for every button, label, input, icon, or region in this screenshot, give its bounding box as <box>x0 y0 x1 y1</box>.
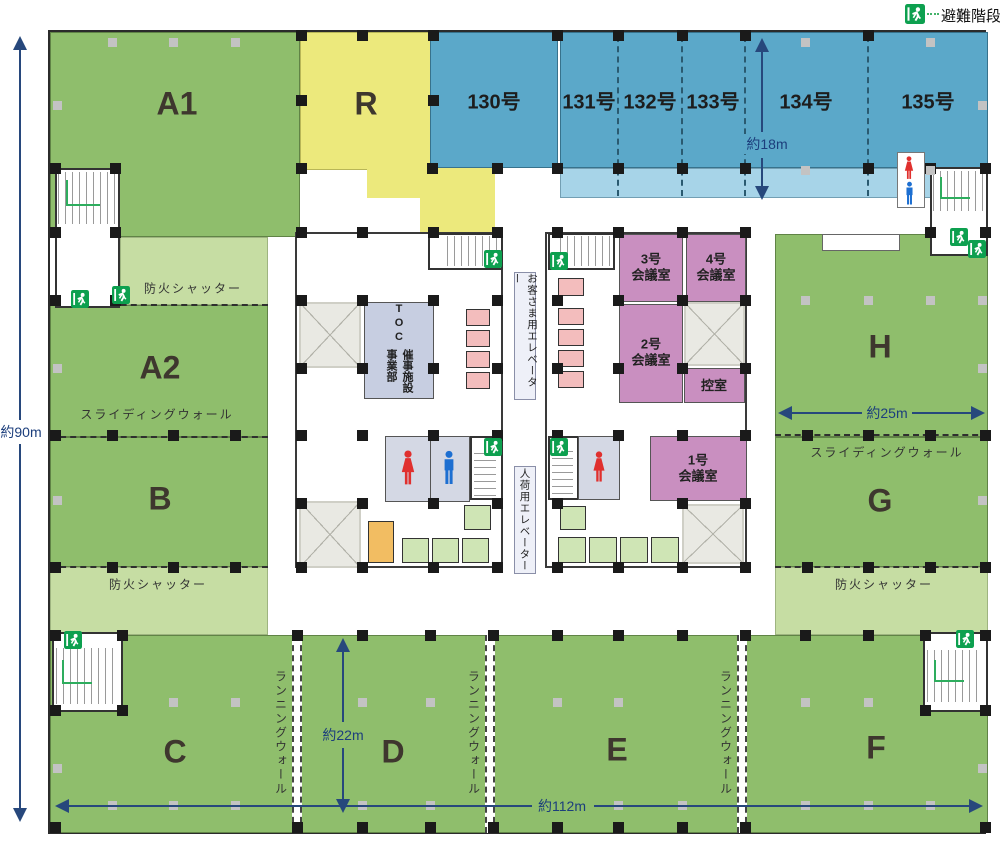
pillar <box>613 630 624 641</box>
meeting-room-4-label: 4号 会議室 <box>696 251 735 282</box>
arrow-left-icon <box>55 799 69 813</box>
pillar <box>801 166 810 175</box>
arrow-up-icon <box>13 36 27 50</box>
pillar <box>740 562 751 573</box>
pillar <box>980 227 991 238</box>
pillar <box>978 764 987 773</box>
arrow-right-icon <box>969 799 983 813</box>
pillar <box>925 227 936 238</box>
dimension-line <box>342 650 344 722</box>
pillar <box>357 363 368 374</box>
floor-plan: A1 R A2 B H G C D E F 130号 131号 132号 133… <box>0 0 1000 843</box>
pillar <box>800 630 811 641</box>
pillar <box>613 562 624 573</box>
pillar <box>677 363 688 374</box>
arrow-right-icon <box>971 406 985 420</box>
running-wall-label: ランニングウォール <box>718 670 735 796</box>
exit-icon <box>956 630 974 648</box>
zone-label-f: F <box>866 730 886 767</box>
pillar <box>978 101 987 110</box>
pillar <box>980 163 991 174</box>
pillar <box>50 430 61 441</box>
woman-icon <box>903 155 915 181</box>
pillar <box>863 430 874 441</box>
pillar <box>925 562 936 573</box>
dimension-line <box>342 748 344 800</box>
elevator-car <box>466 309 490 326</box>
stairs <box>552 450 573 494</box>
pillar <box>863 562 874 573</box>
toc-office: TOC 催事施設事業部 <box>364 302 434 399</box>
pillar <box>425 630 436 641</box>
escape-stairs-legend-icon <box>905 4 925 24</box>
pillar <box>426 698 435 707</box>
pillar <box>169 38 178 47</box>
pillar <box>978 296 987 305</box>
room-label-131: 131号 <box>562 86 615 115</box>
zone-label-r: R <box>354 86 377 123</box>
pillar <box>50 562 61 573</box>
shaft-x <box>682 504 744 564</box>
elevator-car <box>558 308 584 325</box>
zone-label-c: C <box>163 734 186 771</box>
pillar <box>613 227 624 238</box>
elevator-car <box>466 351 490 368</box>
pillar <box>428 498 439 509</box>
man-icon <box>441 448 457 488</box>
pillar <box>488 630 499 641</box>
elevator-car <box>558 278 584 296</box>
pillar <box>677 822 688 833</box>
pillar <box>358 698 367 707</box>
pillar <box>552 363 563 374</box>
pillar <box>925 430 936 441</box>
pillar <box>488 822 499 833</box>
zone-label-e: E <box>606 732 627 769</box>
pillar <box>425 822 436 833</box>
pillar <box>357 630 368 641</box>
pillar <box>492 562 503 573</box>
shaft-x <box>299 302 361 368</box>
pillar <box>296 295 307 306</box>
room-label-130: 130号 <box>467 86 520 115</box>
pillar <box>614 698 623 707</box>
restroom-divider <box>430 436 431 502</box>
pillar <box>428 363 439 374</box>
pillar <box>292 630 303 641</box>
pillar <box>357 295 368 306</box>
pillar <box>980 562 991 573</box>
pillar <box>50 227 61 238</box>
pillar <box>552 30 563 41</box>
dimension-left: 約90m <box>0 422 45 442</box>
pillar <box>296 363 307 374</box>
elevator-car <box>466 330 490 347</box>
pillar <box>428 95 439 106</box>
pillar <box>357 498 368 509</box>
elevator-car <box>432 538 459 563</box>
pillar <box>53 101 62 110</box>
pillar <box>613 430 624 441</box>
pillar <box>863 163 874 174</box>
pillar <box>978 496 987 505</box>
zone-label-b: B <box>148 481 171 518</box>
pillar <box>107 430 118 441</box>
man-icon <box>904 181 915 206</box>
legend-dotted-line <box>927 13 939 15</box>
dimension-line <box>69 805 532 807</box>
pillar <box>552 630 563 641</box>
pillar <box>428 430 439 441</box>
pillar <box>980 822 991 833</box>
arrow-down-icon <box>336 799 350 813</box>
exit-icon <box>484 438 502 456</box>
pillar <box>357 227 368 238</box>
dimension-line <box>792 412 862 414</box>
pillar <box>50 630 61 641</box>
pillar <box>492 227 503 238</box>
pillar <box>677 163 688 174</box>
pillar <box>613 30 624 41</box>
pillar <box>801 38 810 47</box>
pillar <box>740 30 751 41</box>
pillar <box>740 498 751 509</box>
pillar <box>677 295 688 306</box>
pillar <box>801 698 810 707</box>
exit-icon <box>484 250 502 268</box>
sliding-wall-label: スライディングウォール <box>810 444 963 461</box>
shaft-x <box>684 302 745 366</box>
zone-label-g: G <box>868 483 893 520</box>
waiting-room-label: 控室 <box>701 378 727 394</box>
elevator-car <box>651 537 679 563</box>
room-label-132: 132号 <box>623 86 676 115</box>
stairs-arrow <box>940 177 970 199</box>
pillar <box>864 296 873 305</box>
pillar <box>292 822 303 833</box>
running-wall <box>485 635 495 833</box>
pillar <box>677 630 688 641</box>
room-label-134: 134号 <box>779 86 832 115</box>
fire-shutter-label: 防火シャッター <box>835 576 933 593</box>
arrow-up-icon <box>755 38 769 52</box>
pillar <box>296 30 307 41</box>
zone-r-ext2 <box>420 168 495 233</box>
fire-shutter-label: 防火シャッター <box>109 576 207 593</box>
pillar <box>108 38 117 47</box>
pillar <box>552 163 563 174</box>
stairs-arrow <box>66 180 100 206</box>
pillar <box>740 630 751 641</box>
pillar <box>53 364 62 373</box>
pillar <box>613 363 624 374</box>
arrow-up-icon <box>336 638 350 652</box>
freight-elevator-label: 人荷用エレベーター <box>514 466 536 574</box>
pillar <box>863 630 874 641</box>
pillar <box>428 227 439 238</box>
pillar <box>802 562 813 573</box>
pillar <box>296 498 307 509</box>
pillar <box>980 705 991 716</box>
woman-icon <box>399 448 417 488</box>
pillar <box>740 822 751 833</box>
elevator-car <box>560 506 586 530</box>
pillar <box>53 496 62 505</box>
pillar <box>492 498 503 509</box>
pillar <box>296 95 307 106</box>
elevator-car <box>620 537 648 563</box>
room-label-133: 133号 <box>686 86 739 115</box>
customer-elevator-label: お客さま用エレベーター <box>514 272 536 400</box>
pillar <box>50 163 61 174</box>
pillar <box>168 562 179 573</box>
elevator-car <box>462 538 489 563</box>
pillar <box>492 295 503 306</box>
pillar <box>677 430 688 441</box>
zone-label-a1: A1 <box>157 86 198 123</box>
running-wall <box>737 635 747 833</box>
pillar <box>920 705 931 716</box>
pillar <box>740 363 751 374</box>
pillar <box>428 30 439 41</box>
elevator-car-orange <box>368 521 394 563</box>
pillar <box>613 822 624 833</box>
pillar <box>677 562 688 573</box>
elevator-car <box>558 371 584 388</box>
pillar <box>926 38 935 47</box>
freight-elevator-text: 人荷用エレベーター <box>518 468 533 572</box>
pillar <box>864 698 873 707</box>
zone-label-d: D <box>381 734 404 771</box>
pillar <box>552 822 563 833</box>
stairs <box>474 452 496 496</box>
escape-stairs-legend-label: 避難階段 <box>941 5 1000 26</box>
pillar <box>552 295 563 306</box>
pillar <box>428 562 439 573</box>
pillar <box>357 30 368 41</box>
pillar <box>740 295 751 306</box>
elevator-car <box>558 329 584 346</box>
pillar <box>357 562 368 573</box>
room-label-135: 135号 <box>901 86 954 115</box>
running-wall <box>292 635 302 833</box>
dimension-line <box>19 48 21 420</box>
pillar <box>492 363 503 374</box>
pillar <box>978 364 987 373</box>
elevator-car <box>466 372 490 389</box>
pillar <box>740 227 751 238</box>
pillar <box>50 295 61 306</box>
dimension-right: 約25m <box>863 403 910 423</box>
pillar <box>357 430 368 441</box>
customer-elevator-text: お客さま用エレベーター <box>510 273 540 399</box>
pillar <box>920 630 931 641</box>
pillar <box>552 227 563 238</box>
running-wall-label: ランニングウォール <box>466 670 483 796</box>
pillar <box>231 698 240 707</box>
pillar <box>230 562 241 573</box>
pillar <box>50 705 61 716</box>
pillar <box>980 630 991 641</box>
stairs-arrow <box>934 660 964 682</box>
meeting-room-3-label: 3号 会議室 <box>631 251 670 282</box>
dimension-line <box>912 412 972 414</box>
running-wall-label: ランニングウォール <box>273 670 290 796</box>
pillar <box>107 562 118 573</box>
pillar <box>740 430 751 441</box>
fire-shutter-label: 防火シャッター <box>144 280 242 297</box>
pillar <box>50 822 61 833</box>
pillar <box>980 430 991 441</box>
pillar <box>863 30 874 41</box>
exit-icon <box>71 290 89 308</box>
exit-icon <box>64 631 82 649</box>
pillar <box>677 30 688 41</box>
pillar <box>117 630 128 641</box>
pillar <box>168 430 179 441</box>
zone-h-notch <box>822 234 900 251</box>
elevator-car <box>402 538 429 563</box>
pillar <box>926 166 935 175</box>
pillar <box>230 430 241 441</box>
dimension-line <box>19 444 21 808</box>
pillar <box>169 698 178 707</box>
meeting-room-1-label: 1号 会議室 <box>678 452 717 483</box>
pillar <box>427 163 438 174</box>
toc-office-label-en: TOC <box>393 303 405 345</box>
pillar <box>613 295 624 306</box>
arrow-down-icon <box>13 808 27 822</box>
pillar <box>926 296 935 305</box>
toc-office-label-jp: 催事施設事業部 <box>383 349 415 398</box>
restroom-center-left <box>385 436 470 502</box>
meeting-room-2-label: 2号 会議室 <box>631 336 670 367</box>
pillar <box>552 562 563 573</box>
zone-label-h: H <box>868 329 891 366</box>
zone-label-a2: A2 <box>140 350 181 387</box>
pillar <box>802 430 813 441</box>
elevator-car <box>558 537 586 563</box>
pillar <box>296 430 307 441</box>
exit-icon <box>550 252 568 270</box>
pillar <box>110 227 121 238</box>
pillar <box>357 822 368 833</box>
exit-icon <box>550 438 568 456</box>
pillar <box>677 498 688 509</box>
pillar <box>296 163 307 174</box>
pillar <box>428 295 439 306</box>
pillar <box>53 764 62 773</box>
elevator-car <box>464 505 491 530</box>
pillar <box>110 163 121 174</box>
elevator-car <box>589 537 617 563</box>
dimension-top-right: 約18m <box>743 134 790 154</box>
dimension-line <box>594 805 969 807</box>
sliding-wall-label: スライディングウォール <box>80 406 233 423</box>
shaft-x <box>299 501 361 568</box>
pillar <box>231 38 240 47</box>
arrow-down-icon <box>755 186 769 200</box>
woman-icon <box>591 449 607 485</box>
pillar <box>801 296 810 305</box>
pillar <box>740 163 751 174</box>
exit-icon <box>950 228 968 246</box>
dimension-bottom: 約112m <box>535 796 589 816</box>
dimension-line <box>761 158 763 186</box>
pillar <box>296 562 307 573</box>
stairs-arrow <box>62 660 92 684</box>
pillar <box>552 498 563 509</box>
exit-icon <box>112 286 130 304</box>
dimension-line <box>761 50 763 132</box>
pillar <box>553 698 562 707</box>
exit-icon <box>968 240 986 258</box>
pillar <box>677 227 688 238</box>
dimension-center: 約22m <box>319 725 366 745</box>
pillar <box>117 705 128 716</box>
pillar <box>613 163 624 174</box>
pillar <box>492 163 503 174</box>
arrow-left-icon <box>778 406 792 420</box>
pillar <box>296 227 307 238</box>
